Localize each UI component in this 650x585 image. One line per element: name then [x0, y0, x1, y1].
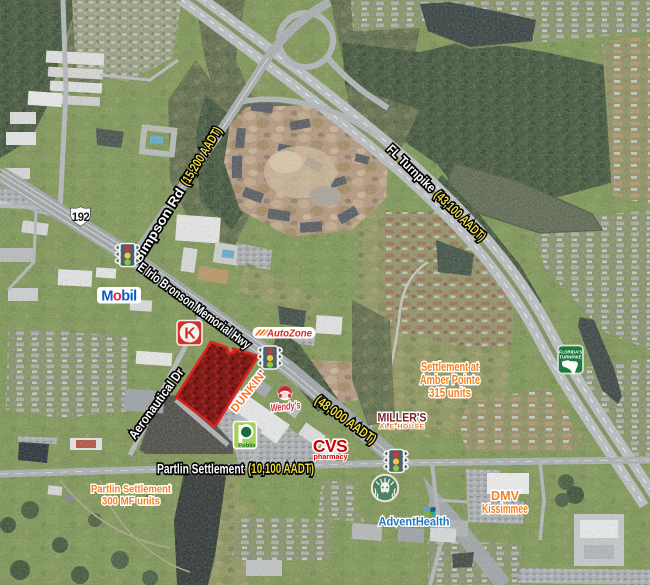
svg-text:Publix: Publix [238, 443, 256, 449]
svg-text:300 MF units: 300 MF units [102, 496, 160, 508]
svg-text:(10,100 AADT): (10,100 AADT) [248, 461, 314, 476]
svg-text:Partlin Settlement: Partlin Settlement [91, 484, 171, 496]
svg-text:DMV: DMV [491, 489, 520, 503]
svg-text:Partlin Settlement: Partlin Settlement [157, 462, 244, 477]
svg-text:Mobil: Mobil [101, 289, 136, 305]
svg-text:315 units: 315 units [429, 386, 471, 400]
svg-text:AdventHealth: AdventHealth [379, 515, 450, 529]
svg-text:192: 192 [72, 211, 90, 224]
svg-text:ALE·HOUSE: ALE·HOUSE [379, 424, 424, 431]
svg-text:pharmacy: pharmacy [314, 452, 348, 461]
svg-text:Kissimmee: Kissimmee [482, 502, 528, 516]
svg-text:K: K [184, 326, 196, 343]
svg-text:Settlement at: Settlement at [421, 360, 480, 374]
svg-text:TURNPIKE: TURNPIKE [559, 355, 582, 360]
svg-text:AutoZone: AutoZone [266, 328, 312, 339]
svg-text:Amber Pointe: Amber Pointe [420, 373, 480, 387]
